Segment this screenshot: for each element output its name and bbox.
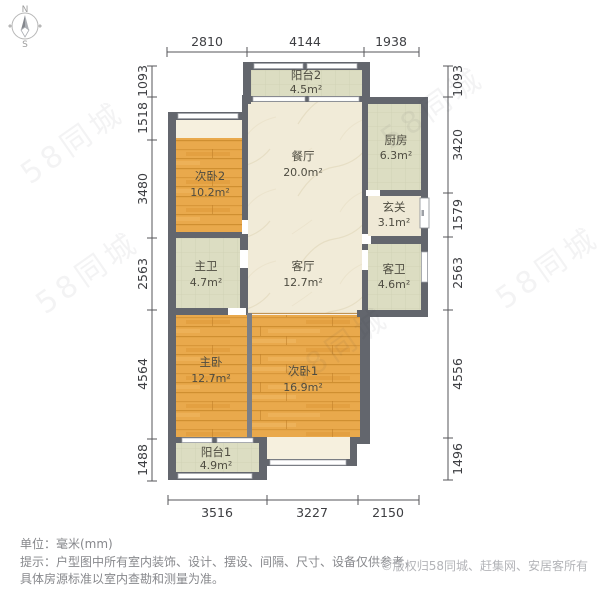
balcony1-sliding-door <box>217 438 253 443</box>
balcony1-window <box>178 474 252 479</box>
svg-text:阳台2: 阳台2 <box>291 68 321 82</box>
dim-top-1: 2810 <box>191 34 223 49</box>
svg-text:客卫: 客卫 <box>383 262 406 276</box>
bedroom2-bay-window <box>178 114 238 119</box>
floorplan-canvas: 阳台2 4.5m² 厨房 6.3m² 玄关 3.1m² 客卫 4.6m² 次卧2… <box>0 0 600 600</box>
balcony1-sliding-door <box>182 438 212 443</box>
bedroom2-baywindow-floor <box>176 118 242 140</box>
svg-text:3.1m²: 3.1m² <box>378 216 411 229</box>
dim-top-3: 1938 <box>375 34 407 49</box>
svg-text:4.9m²: 4.9m² <box>200 459 233 472</box>
svg-text:主卧: 主卧 <box>200 355 223 369</box>
bedroom1-bay-window <box>270 460 346 465</box>
watermark-text: 58同城 <box>490 220 600 316</box>
dim-left-4: 2563 <box>135 258 150 290</box>
master-bedroom-door-opening <box>228 308 246 315</box>
svg-text:4.5m²: 4.5m² <box>290 83 323 96</box>
dim-bottom-2: 3227 <box>296 505 328 520</box>
guest-bath-door-opening <box>362 250 368 270</box>
svg-text:4.7m²: 4.7m² <box>190 276 223 289</box>
dim-right-5: 4556 <box>450 358 465 390</box>
dim-right-6: 1496 <box>450 443 465 475</box>
balcony2-sliding-door <box>309 97 359 102</box>
dim-bottom-3: 2150 <box>372 505 404 520</box>
svg-text:阳台1: 阳台1 <box>201 445 231 459</box>
compass-south-label: S <box>22 40 28 50</box>
dim-left-6: 1488 <box>135 444 150 476</box>
watermark-text: 58同城 <box>30 225 147 321</box>
footer: 单位：毫米(mm) 提示：户型图中所有室内装饰、设计、摆设、间隔、尺寸、设备仅供… <box>20 536 588 586</box>
bedroom1-baywindow-floor <box>267 437 350 460</box>
dim-bottom-1: 3516 <box>201 505 233 520</box>
svg-text:餐厅: 餐厅 <box>292 149 315 163</box>
svg-text:次卧2: 次卧2 <box>195 169 225 183</box>
unit-note: 单位：毫米(mm) <box>20 536 113 551</box>
compass-icon: N S <box>8 5 42 50</box>
dim-left-5: 4564 <box>135 358 150 390</box>
dim-left-2: 1518 <box>135 102 150 134</box>
master-bath-door-opening <box>240 250 248 268</box>
dim-right-3: 1579 <box>450 199 465 231</box>
master-bath-floor <box>176 238 240 308</box>
guest-bath-window <box>422 252 428 282</box>
room-label-balcony1: 阳台1 4.9m² <box>200 445 233 472</box>
svg-text:20.0m²: 20.0m² <box>283 166 323 179</box>
bedroom2-floor <box>176 138 242 232</box>
dim-right-4: 2563 <box>450 257 465 289</box>
balcony2-sliding-door <box>253 97 305 102</box>
floorplan-page: 阳台2 4.5m² 厨房 6.3m² 玄关 3.1m² 客卫 4.6m² 次卧2… <box>0 0 600 600</box>
svg-text:12.7m²: 12.7m² <box>283 276 323 289</box>
dim-left-1: 1093 <box>135 65 150 97</box>
dim-right-2: 3420 <box>450 129 465 161</box>
svg-text:4.6m²: 4.6m² <box>378 278 411 291</box>
svg-text:客厅: 客厅 <box>292 259 315 273</box>
dim-top-2: 4144 <box>289 34 321 49</box>
dim-left-3: 3480 <box>135 173 150 205</box>
disclaimer-line1: 提示：户型图中所有室内装饰、设计、摆设、间隔、尺寸、设备仅供参考， <box>20 554 416 569</box>
compass-west-tick <box>8 24 12 28</box>
foyer-opening <box>362 236 371 244</box>
bedroom2-door-opening <box>242 220 248 234</box>
entry-door-handle <box>422 210 425 216</box>
copyright-text: ©版权归58同城、赶集网、安居客所有 <box>381 558 588 573</box>
compass-east-tick <box>38 24 42 28</box>
entry-door <box>420 198 429 228</box>
svg-text:10.2m²: 10.2m² <box>190 186 230 199</box>
kitchen-door-opening <box>366 190 380 196</box>
svg-text:12.7m²: 12.7m² <box>191 372 231 385</box>
svg-text:主卫: 主卫 <box>195 259 218 273</box>
compass-north-label: N <box>22 5 29 15</box>
disclaimer-line2: 具体房源标准以室内查勘和测量为准。 <box>20 571 224 586</box>
watermark-text: 58同城 <box>15 95 132 191</box>
svg-text:玄关: 玄关 <box>383 200 406 214</box>
